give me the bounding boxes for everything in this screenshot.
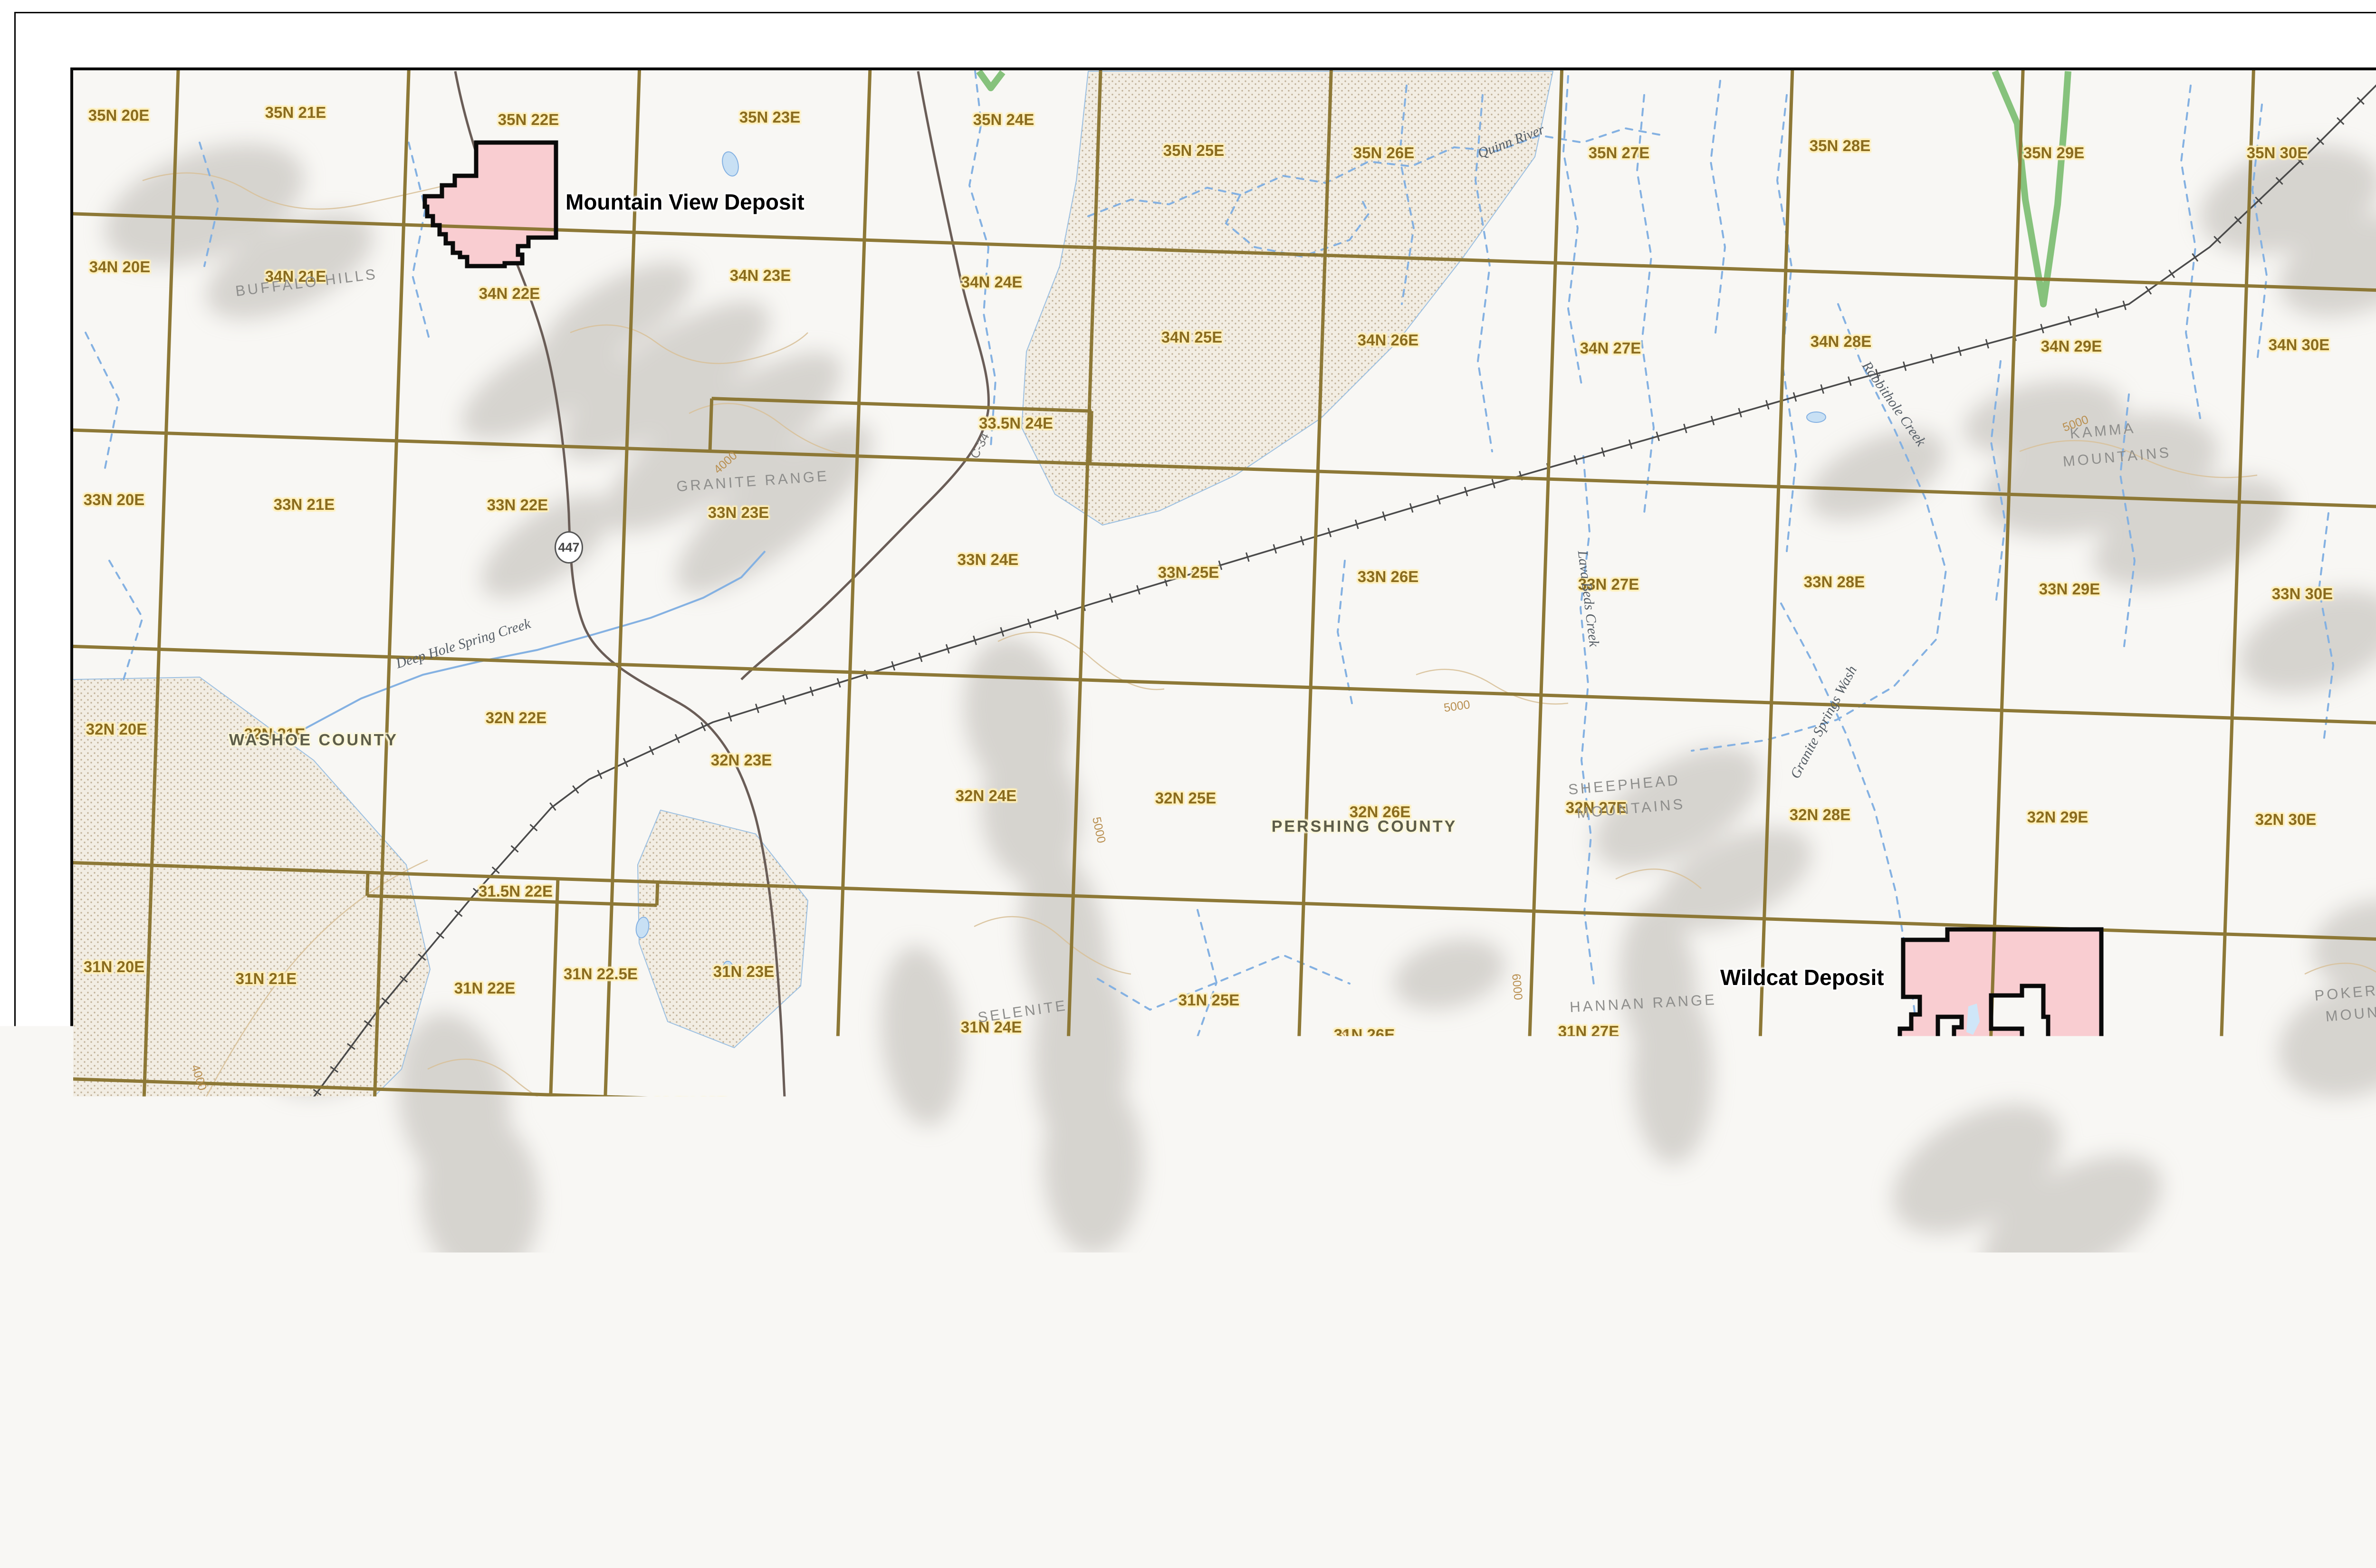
township-label: 35N 28E bbox=[1810, 137, 1870, 155]
township-label: 35N 21E bbox=[265, 104, 326, 122]
township-label: 35N 26E bbox=[1353, 144, 1414, 162]
township-label: 33N 24E bbox=[958, 551, 1018, 569]
township-label: 33N 22E bbox=[487, 496, 548, 514]
legend-title: Legend bbox=[846, 1270, 929, 1299]
township-label: 34N 28E bbox=[1811, 333, 1871, 351]
township-label: 31N 20E bbox=[84, 958, 144, 976]
map-layer: 35N 20E 35N 21E 35N 22E 35N 23E 35N 24E … bbox=[70, 67, 2376, 1255]
file-path-text: Path: Z:\Shared\DMC_Data\GIS_Data\Report… bbox=[1859, 1517, 2376, 1531]
map-sheet: 35N 20E 35N 21E 35N 22E 35N 23E 35N 24E … bbox=[0, 0, 2376, 1568]
logo-triangle-icon bbox=[270, 1286, 286, 1300]
legend-swatch-patented bbox=[607, 1317, 657, 1356]
township-label: 33N 21E bbox=[274, 496, 335, 514]
township-label: 33N 23E bbox=[708, 504, 769, 522]
township-label: 33N 30E bbox=[2272, 585, 2333, 603]
credit-line: Imagery | Integra 2019 bbox=[81, 1474, 200, 1488]
township-label: 34N 20E bbox=[89, 258, 150, 276]
map-title-line1: Nevada North Land Position bbox=[2085, 1444, 2371, 1469]
township-label: 35N 25E bbox=[1163, 142, 1224, 160]
township-label: 30.5N 23.5E bbox=[786, 1098, 873, 1116]
credit-line: Sources | Esri, BLM, USGS, Integra Resou… bbox=[81, 1487, 359, 1501]
north-arrow-n: N bbox=[394, 1405, 410, 1431]
township-label: 30N 26E bbox=[1331, 1191, 1391, 1209]
township-label: 35N 30E bbox=[2247, 144, 2308, 162]
legend-label-patented: MNV Patented Claim bbox=[672, 1327, 828, 1346]
township-label: 34N 26E bbox=[1358, 331, 1418, 349]
township-label: 30N 29E bbox=[2013, 1198, 2074, 1216]
township-label: 32N 29E bbox=[2027, 808, 2088, 826]
scalebar-start: 0 bbox=[97, 1353, 106, 1371]
township-label: 32N 28E bbox=[1790, 806, 1850, 824]
scale-bar bbox=[101, 1374, 318, 1395]
company-name: Millennial NV LLC bbox=[2243, 1297, 2371, 1316]
township-label: 34N 23E bbox=[730, 267, 791, 285]
township-label: 30.5N 23E bbox=[653, 1095, 727, 1113]
township-label: 31N 27E bbox=[1558, 1023, 1619, 1041]
township-label: 31N 22E bbox=[454, 979, 515, 997]
township-label: 30N 22E bbox=[432, 1164, 493, 1182]
highway-shield-447: 447 bbox=[555, 531, 583, 564]
township-label: 31.5N 22E bbox=[479, 882, 553, 900]
county-label: PERSHING COUNTY bbox=[1272, 818, 1457, 836]
township-label: 35N 20E bbox=[88, 106, 149, 124]
township-label: 31N 29E bbox=[2008, 1037, 2069, 1055]
map-title-line2: Wildcat and Mountain View bbox=[2096, 1470, 2371, 1495]
map-date: 2024-03-19 bbox=[2289, 1274, 2371, 1293]
credit-line: WGS 84 UTM Zone 11 North Meters bbox=[81, 1461, 273, 1474]
township-label: 31N 22.5E bbox=[564, 965, 638, 983]
township-label: 30N 24E bbox=[962, 1187, 1023, 1205]
township-label: 34N 27E bbox=[1580, 339, 1641, 357]
township-label: 32N 23E bbox=[711, 751, 772, 769]
township-label: 35N 24E bbox=[973, 111, 1034, 129]
township-label: 30N 21E bbox=[208, 1167, 269, 1185]
township-label: 34N 30E bbox=[2269, 336, 2329, 354]
township-label: 33N 29E bbox=[2039, 580, 2100, 598]
legend-swatch-unpatented bbox=[607, 1363, 657, 1402]
township-label: 32N 25E bbox=[1155, 789, 1216, 807]
township-label: 35N 22E bbox=[498, 111, 559, 129]
scale-equiv-text: 1 inch equals 20,000 feet bbox=[125, 1444, 284, 1460]
township-label: 33N 25E bbox=[1158, 564, 1219, 582]
township-label: 31N 21E bbox=[236, 970, 297, 988]
township-label: 30N 25E bbox=[1160, 1198, 1221, 1216]
township-label: 32N 24E bbox=[956, 787, 1016, 805]
township-label: 33N 28E bbox=[1804, 573, 1865, 591]
township-label: 30N 23.5E bbox=[806, 1176, 881, 1195]
township-label: 35N 23E bbox=[739, 108, 800, 126]
legend-icon-property-boundary bbox=[903, 1317, 955, 1356]
contour-label: 6000 bbox=[1509, 973, 1525, 1001]
township-label: 31N 30E bbox=[2256, 1048, 2317, 1066]
township-label: 20E bbox=[84, 1151, 112, 1169]
township-label: 34N 29E bbox=[2041, 337, 2102, 355]
deposit-label-mountain-view: Mountain View Deposit bbox=[565, 189, 805, 215]
township-label: 35N 27E bbox=[1589, 144, 1649, 162]
township-label: 30N 28E bbox=[1778, 1200, 1839, 1218]
map-frame: 35N 20E 35N 21E 35N 22E 35N 23E 35N 24E … bbox=[70, 67, 2376, 1255]
township-label: 30N 30E bbox=[2246, 1205, 2307, 1223]
township-label: 31N 23E bbox=[713, 963, 774, 981]
county-label: WASHOE COUNTY bbox=[229, 731, 398, 750]
legend-icon-township-range bbox=[903, 1363, 955, 1402]
township-label: 32N 20E bbox=[86, 720, 147, 738]
township-label: 33N 26E bbox=[1358, 568, 1418, 586]
township-label: 33.5N 24E bbox=[979, 414, 1053, 432]
township-label: 31N 28E bbox=[1782, 1061, 1843, 1079]
township-label: 30N 23E bbox=[661, 1179, 722, 1197]
township-label: 30N 27E bbox=[1554, 1195, 1615, 1214]
township-label: 33N 20E bbox=[84, 491, 144, 509]
township-label: 34N 22E bbox=[479, 285, 540, 303]
legend-label-township-range: Township - Range (PLSS) bbox=[969, 1372, 1161, 1391]
township-label: 32N 22E bbox=[486, 709, 546, 727]
logo-subtitle: NEVADA bbox=[144, 1322, 274, 1339]
logo-wordmark: INTEGRA bbox=[144, 1283, 286, 1317]
township-label: 35N 29E bbox=[2023, 144, 2084, 162]
legend-label-unpatented: MNV Unpatented Claim bbox=[672, 1372, 847, 1391]
scale-ratio-text: Scale: 1:240,000 bbox=[151, 1424, 258, 1440]
nevada-state-icon bbox=[83, 1265, 150, 1365]
legend-label-property-boundary: Property Boundary bbox=[969, 1327, 1108, 1346]
township-label: 34N 24E bbox=[961, 273, 1022, 291]
scalebar-unit: Feet bbox=[192, 1407, 224, 1425]
scalebar-end: 30,000 bbox=[292, 1353, 340, 1371]
deposit-label-wildcat: Wildcat Deposit bbox=[1720, 965, 1884, 990]
township-label: 32N 30E bbox=[2255, 811, 2316, 829]
township-label: 31N 25E bbox=[1178, 991, 1239, 1009]
corporation-name: Integra Resources Corporation bbox=[2150, 1320, 2371, 1339]
township-label: 34N 25E bbox=[1161, 328, 1222, 346]
